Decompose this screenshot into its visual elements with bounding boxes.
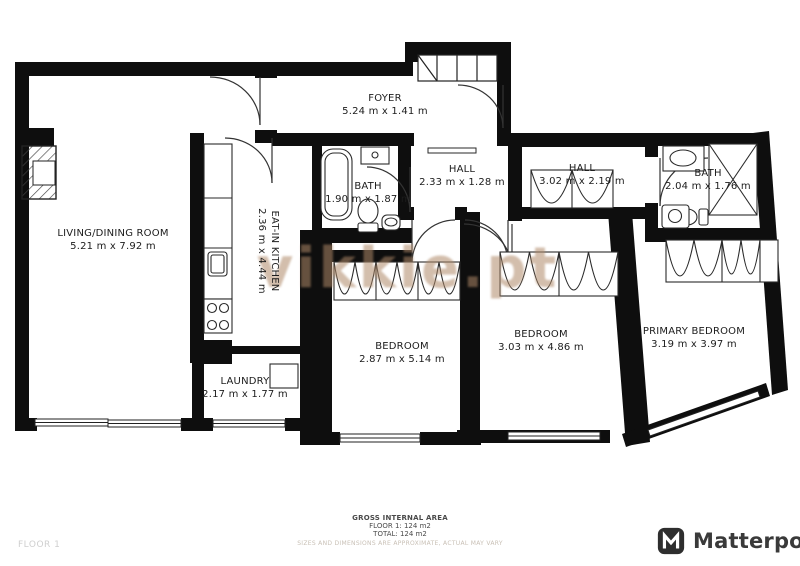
- stove-burner: [208, 321, 217, 330]
- room-dims: 2.87 m x 5.14 m: [342, 353, 462, 366]
- floorplan-page: vikkie.pt LIVING/DINING ROOM 5.21 m x 7.…: [0, 0, 800, 566]
- door-arc: [210, 77, 260, 125]
- room-label-kitchen: EAT-IN KITCHEN 2.36 m x 4.44 m: [255, 181, 281, 321]
- fireplace-opening: [33, 161, 55, 185]
- room-label-hall-2: HALL 3.02 m x 2.19 m: [522, 162, 642, 188]
- wall-segment: [405, 42, 418, 62]
- room-dims: 3.19 m x 3.97 m: [614, 338, 774, 351]
- sink-basin: [670, 150, 696, 166]
- room-label-bath-2: BATH 2.04 m x 1.76 m: [648, 167, 768, 193]
- room-label-living-dining: LIVING/DINING ROOM 5.21 m x 7.92 m: [33, 227, 193, 253]
- stairs: [418, 55, 497, 81]
- room-dims: 3.03 m x 4.86 m: [481, 341, 601, 354]
- room-dims: 2.04 m x 1.76 m: [648, 180, 768, 193]
- room-name: FOYER: [305, 92, 465, 105]
- room-dims: 5.21 m x 7.92 m: [33, 240, 193, 253]
- wall-segment: [405, 42, 510, 55]
- room-dims: 5.24 m x 1.41 m: [305, 105, 465, 118]
- room-name: LAUNDRY: [185, 375, 305, 388]
- wall-segment: [15, 62, 260, 76]
- room-dims: 2.33 m x 1.28 m: [402, 176, 522, 189]
- matterport-logo-text: Matterport: [693, 529, 800, 553]
- room-name: BEDROOM: [342, 340, 462, 353]
- toilet-tank: [699, 209, 708, 225]
- stove-burner: [208, 304, 217, 313]
- wall-segment: [457, 430, 481, 445]
- wall-segment: [332, 250, 412, 262]
- room-label-hall-1: HALL 2.33 m x 1.28 m: [402, 163, 522, 189]
- kitchen-fixtures: [204, 144, 232, 333]
- room-label-bedroom-1: BEDROOM 2.87 m x 5.14 m: [342, 340, 462, 366]
- room-label-laundry: LAUNDRY 2.17 m x 1.77 m: [185, 375, 305, 401]
- wall-segment: [28, 128, 54, 146]
- matterport-logo-icon: [656, 526, 686, 556]
- room-label-primary-bedroom: PRIMARY BEDROOM 3.19 m x 3.97 m: [614, 325, 774, 351]
- room-name: HALL: [522, 162, 642, 175]
- door-arc: [412, 220, 455, 263]
- wall-segment: [398, 207, 414, 220]
- windows: [35, 391, 760, 442]
- toilet-tank: [358, 223, 378, 232]
- room-dims: 2.17 m x 1.77 m: [185, 388, 305, 401]
- wall-segment: [510, 133, 657, 147]
- room-name: LIVING/DINING ROOM: [33, 227, 193, 240]
- wall-segment: [460, 212, 480, 436]
- stove-burner: [220, 321, 229, 330]
- wall-segment: [285, 418, 332, 431]
- stove-burner: [220, 304, 229, 313]
- kitchen-sink-basin: [211, 255, 224, 273]
- wall-segment: [181, 418, 213, 431]
- room-dims: 2.36 m x 4.44 m: [255, 181, 268, 321]
- wall-segment: [300, 230, 332, 445]
- floorplan-drawing: [0, 0, 800, 566]
- wall-segment: [15, 418, 37, 431]
- wall-segment: [15, 62, 29, 430]
- room-label-foyer: FOYER 5.24 m x 1.41 m: [305, 92, 465, 118]
- wall-segment: [273, 62, 413, 76]
- bidet-basin: [385, 218, 397, 226]
- wall-segment: [200, 340, 232, 364]
- closet: [334, 262, 460, 300]
- washbasin-bowl: [669, 210, 682, 223]
- gross-area-title: GROSS INTERNAL AREA: [0, 514, 800, 522]
- room-dims: 3.02 m x 2.19 m: [522, 175, 642, 188]
- matterport-logo: Matterport: [656, 526, 800, 556]
- hall-shelf: [428, 148, 476, 153]
- wall-segment: [232, 346, 300, 354]
- room-name: HALL: [402, 163, 522, 176]
- room-dims: 1.90 m x 1.87 m: [318, 193, 418, 206]
- wall-segment: [497, 42, 511, 146]
- room-name: PRIMARY BEDROOM: [614, 325, 774, 338]
- room-name: BEDROOM: [481, 328, 601, 341]
- room-name: BATH: [648, 167, 768, 180]
- wall-segment: [322, 133, 414, 146]
- sink-faucet: [372, 152, 378, 158]
- wall-segment: [322, 432, 340, 445]
- window: [648, 391, 760, 436]
- room-label-bedroom-2: BEDROOM 3.03 m x 4.86 m: [481, 328, 601, 354]
- room-name: EAT-IN KITCHEN: [268, 181, 281, 321]
- wall-segment: [516, 207, 646, 219]
